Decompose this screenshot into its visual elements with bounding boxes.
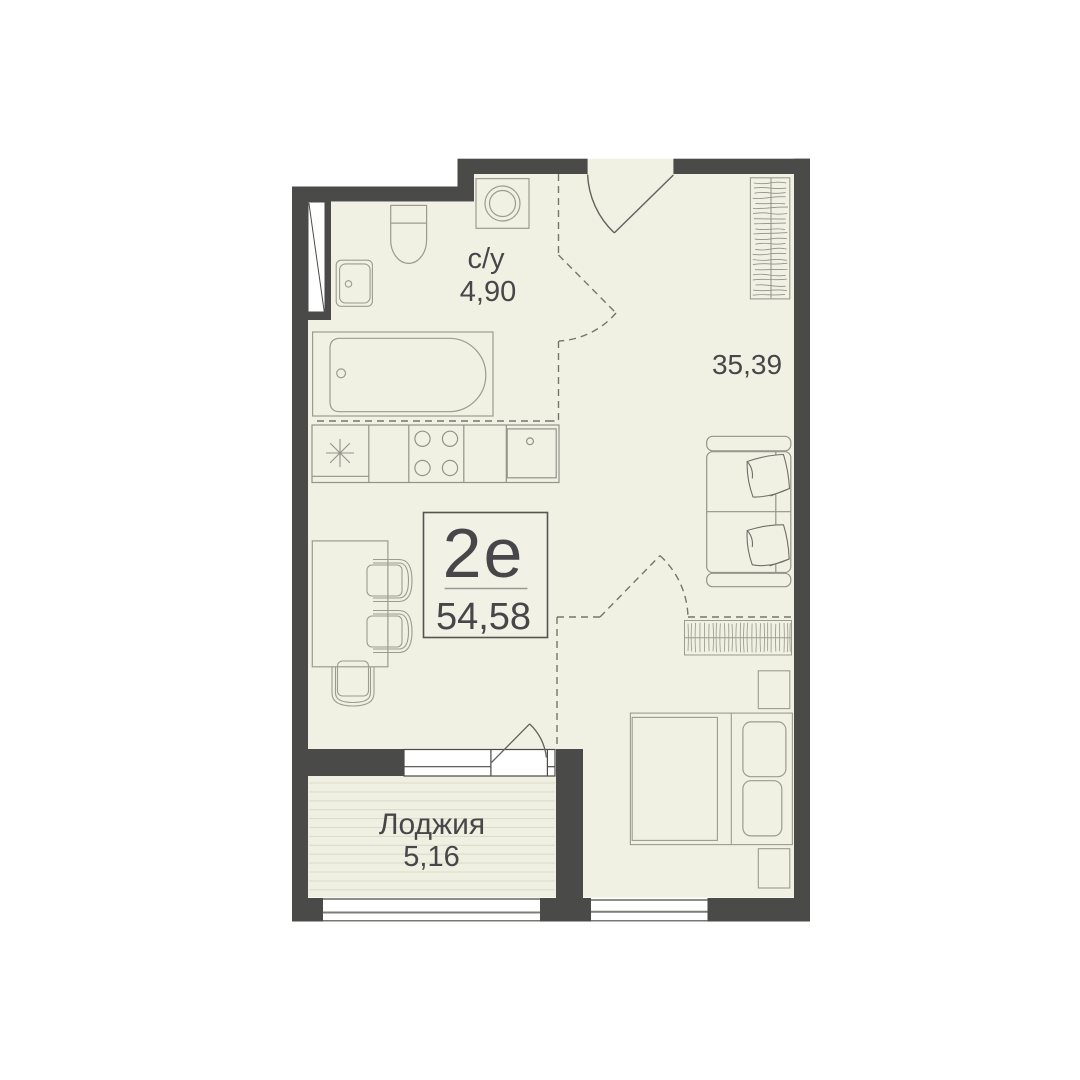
- svg-text:35,39: 35,39: [712, 349, 782, 380]
- svg-text:Лоджия: Лоджия: [379, 808, 485, 841]
- svg-text:2е: 2е: [443, 514, 525, 592]
- svg-text:5,16: 5,16: [403, 841, 459, 873]
- svg-text:с/у: с/у: [467, 243, 505, 275]
- svg-text:54,58: 54,58: [436, 596, 531, 638]
- svg-text:4,90: 4,90: [460, 276, 516, 308]
